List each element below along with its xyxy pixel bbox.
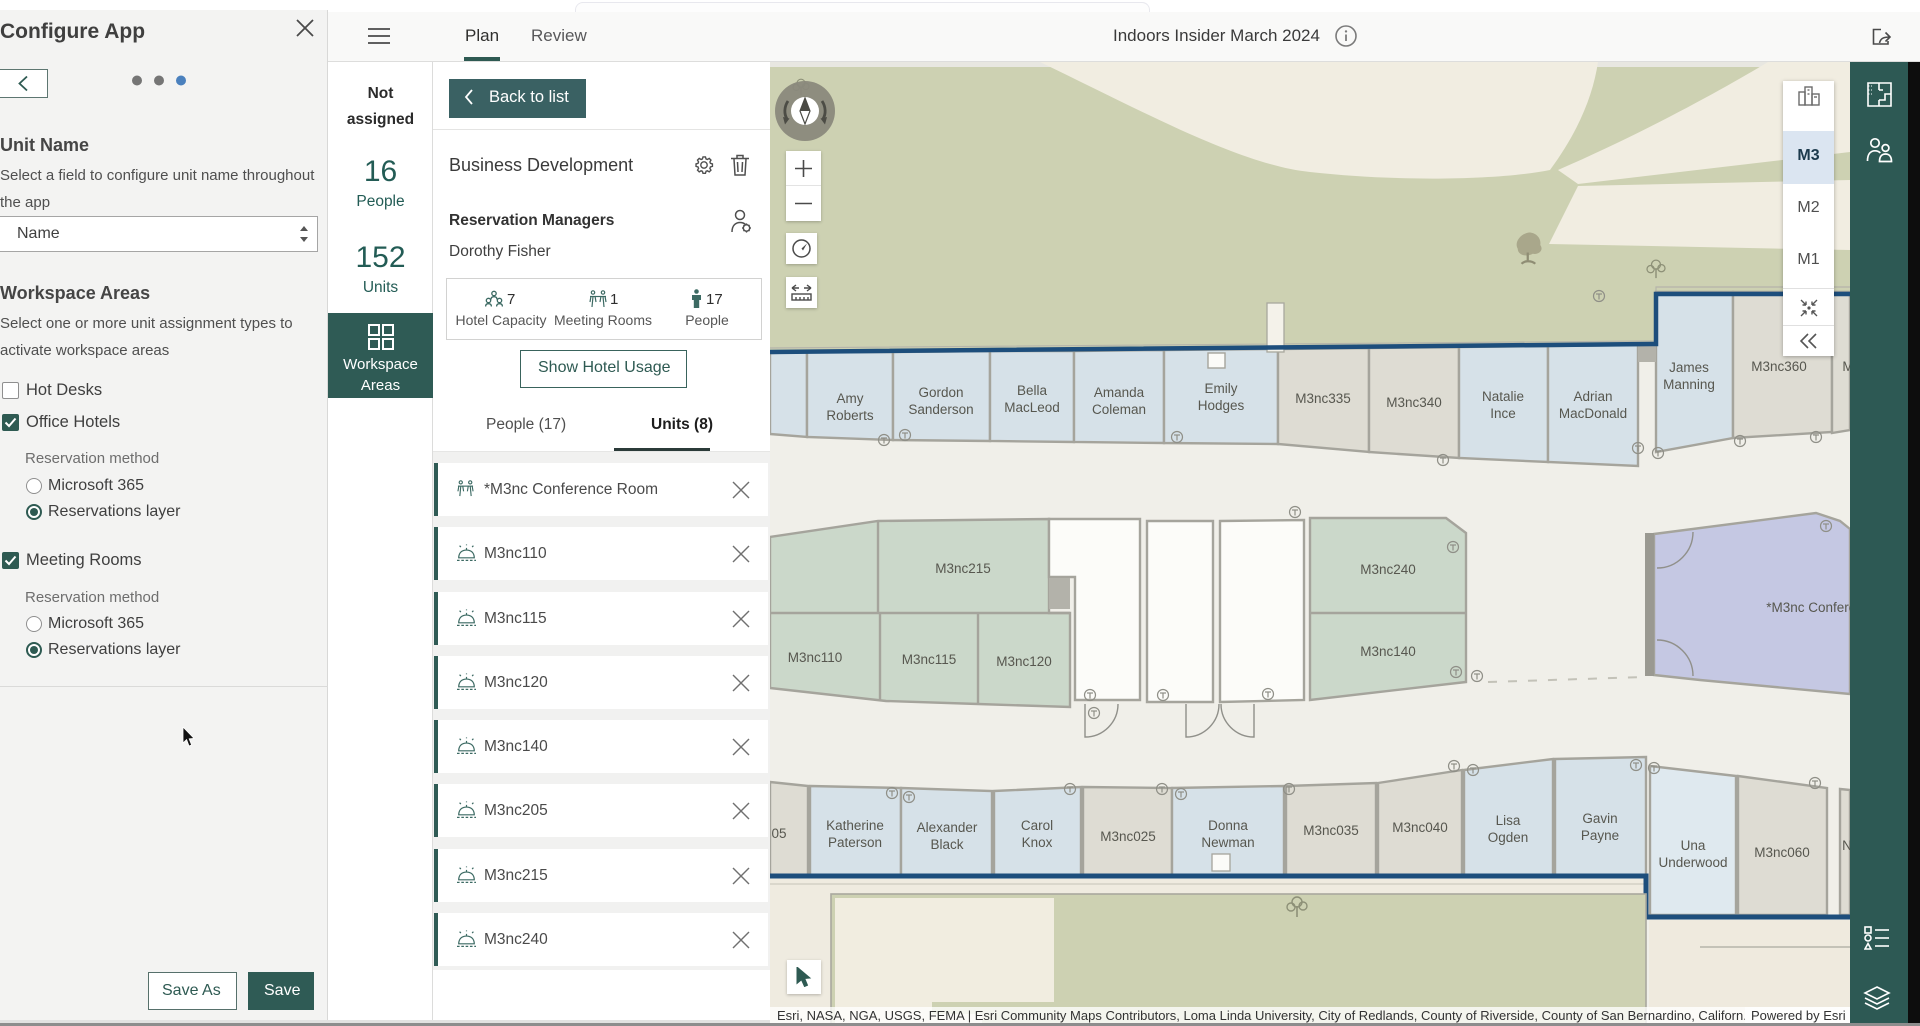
svg-text:05: 05 — [771, 826, 786, 841]
svg-text:Hodges: Hodges — [1198, 398, 1245, 413]
svg-text:M3nc215: M3nc215 — [935, 561, 991, 576]
svg-text:M3nc035: M3nc035 — [1303, 823, 1359, 838]
svg-text:M3nc240: M3nc240 — [1360, 562, 1416, 577]
svg-text:Carol: Carol — [1021, 818, 1053, 833]
svg-text:Coleman: Coleman — [1092, 402, 1146, 417]
svg-text:Gordon: Gordon — [918, 385, 963, 400]
svg-text:Emily: Emily — [1205, 381, 1238, 396]
svg-text:Sanderson: Sanderson — [908, 402, 973, 417]
svg-text:*M3nc Conferen: *M3nc Conferen — [1766, 600, 1850, 615]
svg-text:Ogden: Ogden — [1488, 830, 1529, 845]
svg-text:James: James — [1669, 360, 1709, 375]
svg-text:Donna: Donna — [1208, 818, 1248, 833]
svg-text:M3nc110: M3nc110 — [788, 650, 843, 665]
svg-text:Una: Una — [1681, 838, 1706, 853]
svg-text:M3nc120: M3nc120 — [996, 654, 1052, 669]
svg-text:Underwood: Underwood — [1658, 855, 1727, 870]
svg-text:Newman: Newman — [1201, 835, 1254, 850]
svg-text:Black: Black — [930, 837, 963, 852]
svg-text:M3nc340: M3nc340 — [1386, 395, 1442, 410]
svg-text:Paterson: Paterson — [828, 835, 882, 850]
svg-text:Lisa: Lisa — [1496, 813, 1521, 828]
svg-text:M3nc335: M3nc335 — [1295, 391, 1351, 406]
svg-text:M3nc360: M3nc360 — [1751, 359, 1807, 374]
svg-text:MacDonald: MacDonald — [1559, 406, 1627, 421]
svg-text:M3nc040: M3nc040 — [1392, 820, 1448, 835]
svg-text:MacLeod: MacLeod — [1004, 400, 1060, 415]
svg-text:Gavin: Gavin — [1582, 811, 1617, 826]
svg-text:N: N — [1842, 838, 1850, 853]
svg-text:Bella: Bella — [1017, 383, 1048, 398]
svg-text:Amy: Amy — [837, 391, 864, 406]
svg-text:Manning: Manning — [1663, 377, 1715, 392]
svg-text:M3nc060: M3nc060 — [1754, 845, 1810, 860]
svg-text:M3nc115: M3nc115 — [902, 652, 957, 667]
svg-text:Knox: Knox — [1022, 835, 1053, 850]
svg-text:M: M — [1842, 359, 1850, 374]
svg-text:Katherine: Katherine — [826, 818, 884, 833]
svg-text:M3nc140: M3nc140 — [1360, 644, 1416, 659]
svg-text:Alexander: Alexander — [917, 820, 978, 835]
svg-text:Payne: Payne — [1581, 828, 1619, 843]
svg-text:Ince: Ince — [1490, 406, 1516, 421]
svg-text:Natalie: Natalie — [1482, 389, 1524, 404]
svg-text:Amanda: Amanda — [1094, 385, 1145, 400]
svg-text:Adrian: Adrian — [1573, 389, 1612, 404]
svg-text:M3nc025: M3nc025 — [1100, 829, 1156, 844]
svg-text:Roberts: Roberts — [826, 408, 874, 423]
